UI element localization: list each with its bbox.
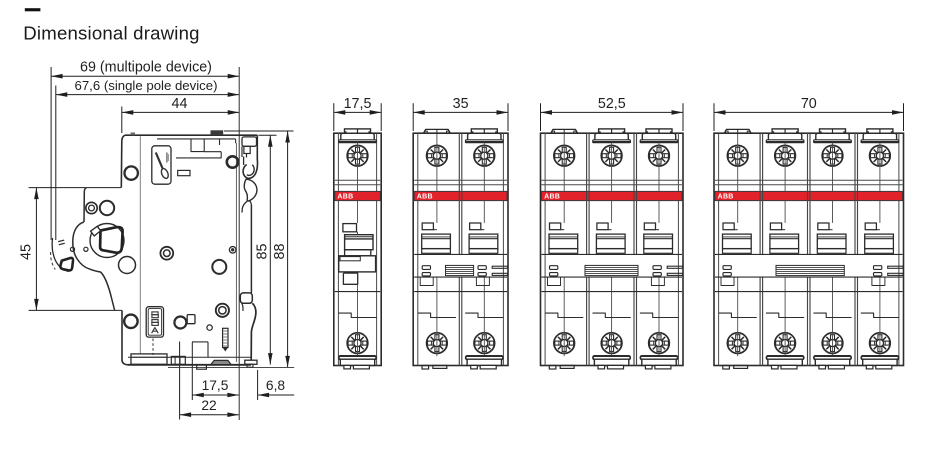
svg-text:45: 45	[19, 244, 35, 260]
svg-text:70: 70	[801, 96, 817, 112]
svg-text:85: 85	[255, 244, 271, 260]
svg-text:ABB: ABB	[544, 194, 560, 201]
svg-text:35: 35	[453, 96, 469, 112]
svg-text:ABB: ABB	[417, 194, 433, 201]
svg-text:88: 88	[272, 244, 288, 260]
svg-text:6,8: 6,8	[266, 378, 286, 393]
svg-text:22: 22	[201, 398, 216, 413]
svg-text:ABB: ABB	[718, 194, 734, 201]
svg-text:44: 44	[172, 96, 188, 112]
svg-text:69 (multipole device): 69 (multipole device)	[80, 59, 212, 75]
svg-text:ABB: ABB	[337, 194, 353, 201]
svg-text:67,6 (single pole device): 67,6 (single pole device)	[75, 78, 218, 93]
svg-text:17,5: 17,5	[202, 378, 229, 393]
svg-text:Dimensional drawing: Dimensional drawing	[23, 23, 199, 44]
svg-text:17,5: 17,5	[344, 96, 372, 112]
svg-text:52,5: 52,5	[598, 96, 626, 112]
